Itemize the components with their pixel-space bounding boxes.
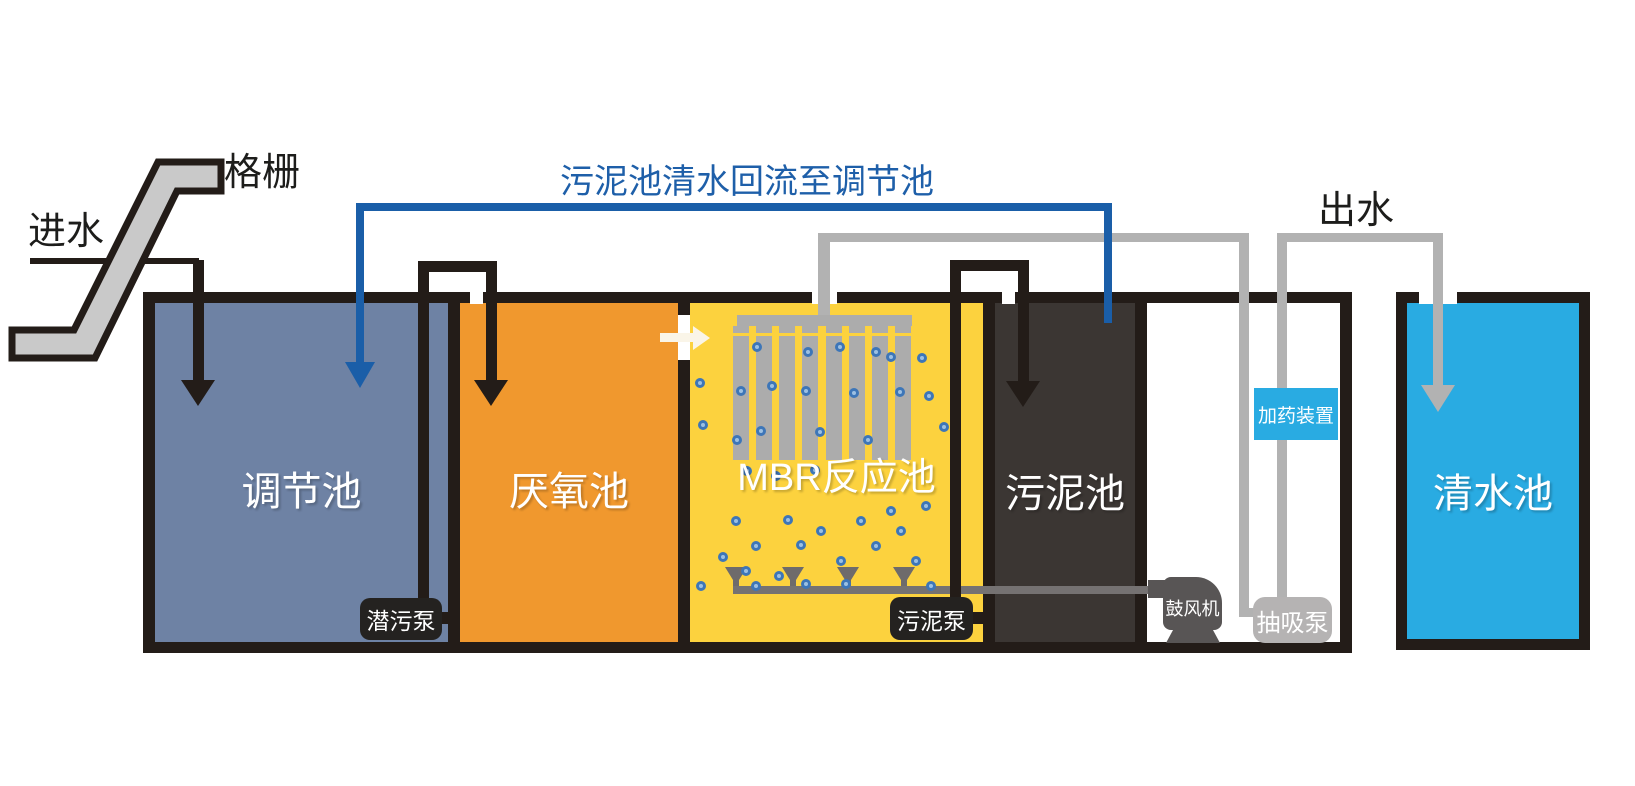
bubble [841,579,851,589]
outlet-pipe-down [1433,242,1443,385]
aeration-bubbles [0,0,1635,786]
bubble [895,387,905,397]
bubble [751,541,761,551]
return-arrowhead [345,362,375,388]
suction-pump-label: 抽吸泵 [1257,603,1329,638]
submersible-pump-nub [442,612,452,624]
bubble [751,581,761,591]
clean-water-tank-label: 清水池 [1407,472,1579,516]
return-pipe-left-leg [356,203,364,364]
bubble [917,353,927,363]
bubble [921,501,931,511]
submersible-pump: 潜污泵 [360,598,442,640]
flow-arrowhead [693,326,710,350]
pipe1-arrowhead [474,380,508,406]
bubble [695,378,705,388]
bubble [803,347,813,357]
inlet-arrow-shaft [193,260,204,382]
inlet-arrowhead [181,380,215,406]
bubble [886,352,896,362]
outlet-pipe-horizontal [1277,233,1443,242]
suction-pump: 抽吸泵 [1253,597,1332,643]
process-flow-diagram: 潜污泵 污泥泵 鼓风机 抽吸泵 加药装置 进水 格栅 出水 污泥池清水回流至调节… [0,0,1635,786]
pipe2-left-leg [950,260,961,597]
return-pipe-label: 污泥池清水回流至调节池 [560,163,916,201]
bubble [815,427,825,437]
bubble [801,386,811,396]
return-pipe-right-leg [1104,203,1112,323]
return-pipe-horizontal [356,203,1112,211]
bubble [752,342,762,352]
sludge-pump-nub [973,612,983,624]
bubble [732,435,742,445]
submersible-pump-label: 潜污泵 [367,602,436,636]
regulation-tank-label: 调节池 [155,470,448,514]
bubble [871,347,881,357]
bubble [736,386,746,396]
pipe2-arrowhead [1006,381,1040,407]
outlet-arrowhead [1421,385,1455,412]
bubble [926,581,936,591]
sludge-pump-label: 污泥泵 [897,602,966,636]
screen-label: 格栅 [224,153,300,193]
permeate-pipe-down [1239,233,1249,617]
outlet-label: 出水 [1318,191,1394,231]
bubble [896,526,906,536]
sludge-tank-label: 污泥池 [995,472,1135,516]
dosing-device: 加药装置 [1254,388,1338,440]
pipe1-left-leg [418,261,429,598]
flow-arrow-shaft [660,333,694,342]
bubble [863,435,873,445]
sludge-pump: 污泥泵 [890,597,973,640]
bubble [849,388,859,398]
permeate-riser [818,233,830,315]
bubble [911,556,921,566]
inlet-label: 进水 [28,212,104,252]
bubble [774,571,784,581]
anaerobic-tank-label: 厌氧池 [460,470,678,514]
permeate-pipe-horizontal [818,233,1249,242]
bubble [871,541,881,551]
bubble [731,516,741,526]
bubble [886,506,896,516]
bubble [836,556,846,566]
pipe2-right-leg [1018,260,1029,383]
bubble [696,581,706,591]
bubble [783,515,793,525]
bubble [698,420,708,430]
bubble [939,422,949,432]
blower-label: 鼓风机 [1166,595,1220,621]
bubble [816,526,826,536]
dosing-device-label: 加药装置 [1258,401,1334,428]
bubble [796,540,806,550]
mbr-tank-label: MBR反应池 [690,456,983,500]
bubble [856,516,866,526]
blower: 鼓风机 [1163,598,1222,618]
bubble [801,579,811,589]
bubble [741,566,751,576]
bubble [767,381,777,391]
pipe1-right-leg [486,261,497,382]
bubble [756,426,766,436]
bubble [924,391,934,401]
bubble [835,342,845,352]
bubble [718,552,728,562]
